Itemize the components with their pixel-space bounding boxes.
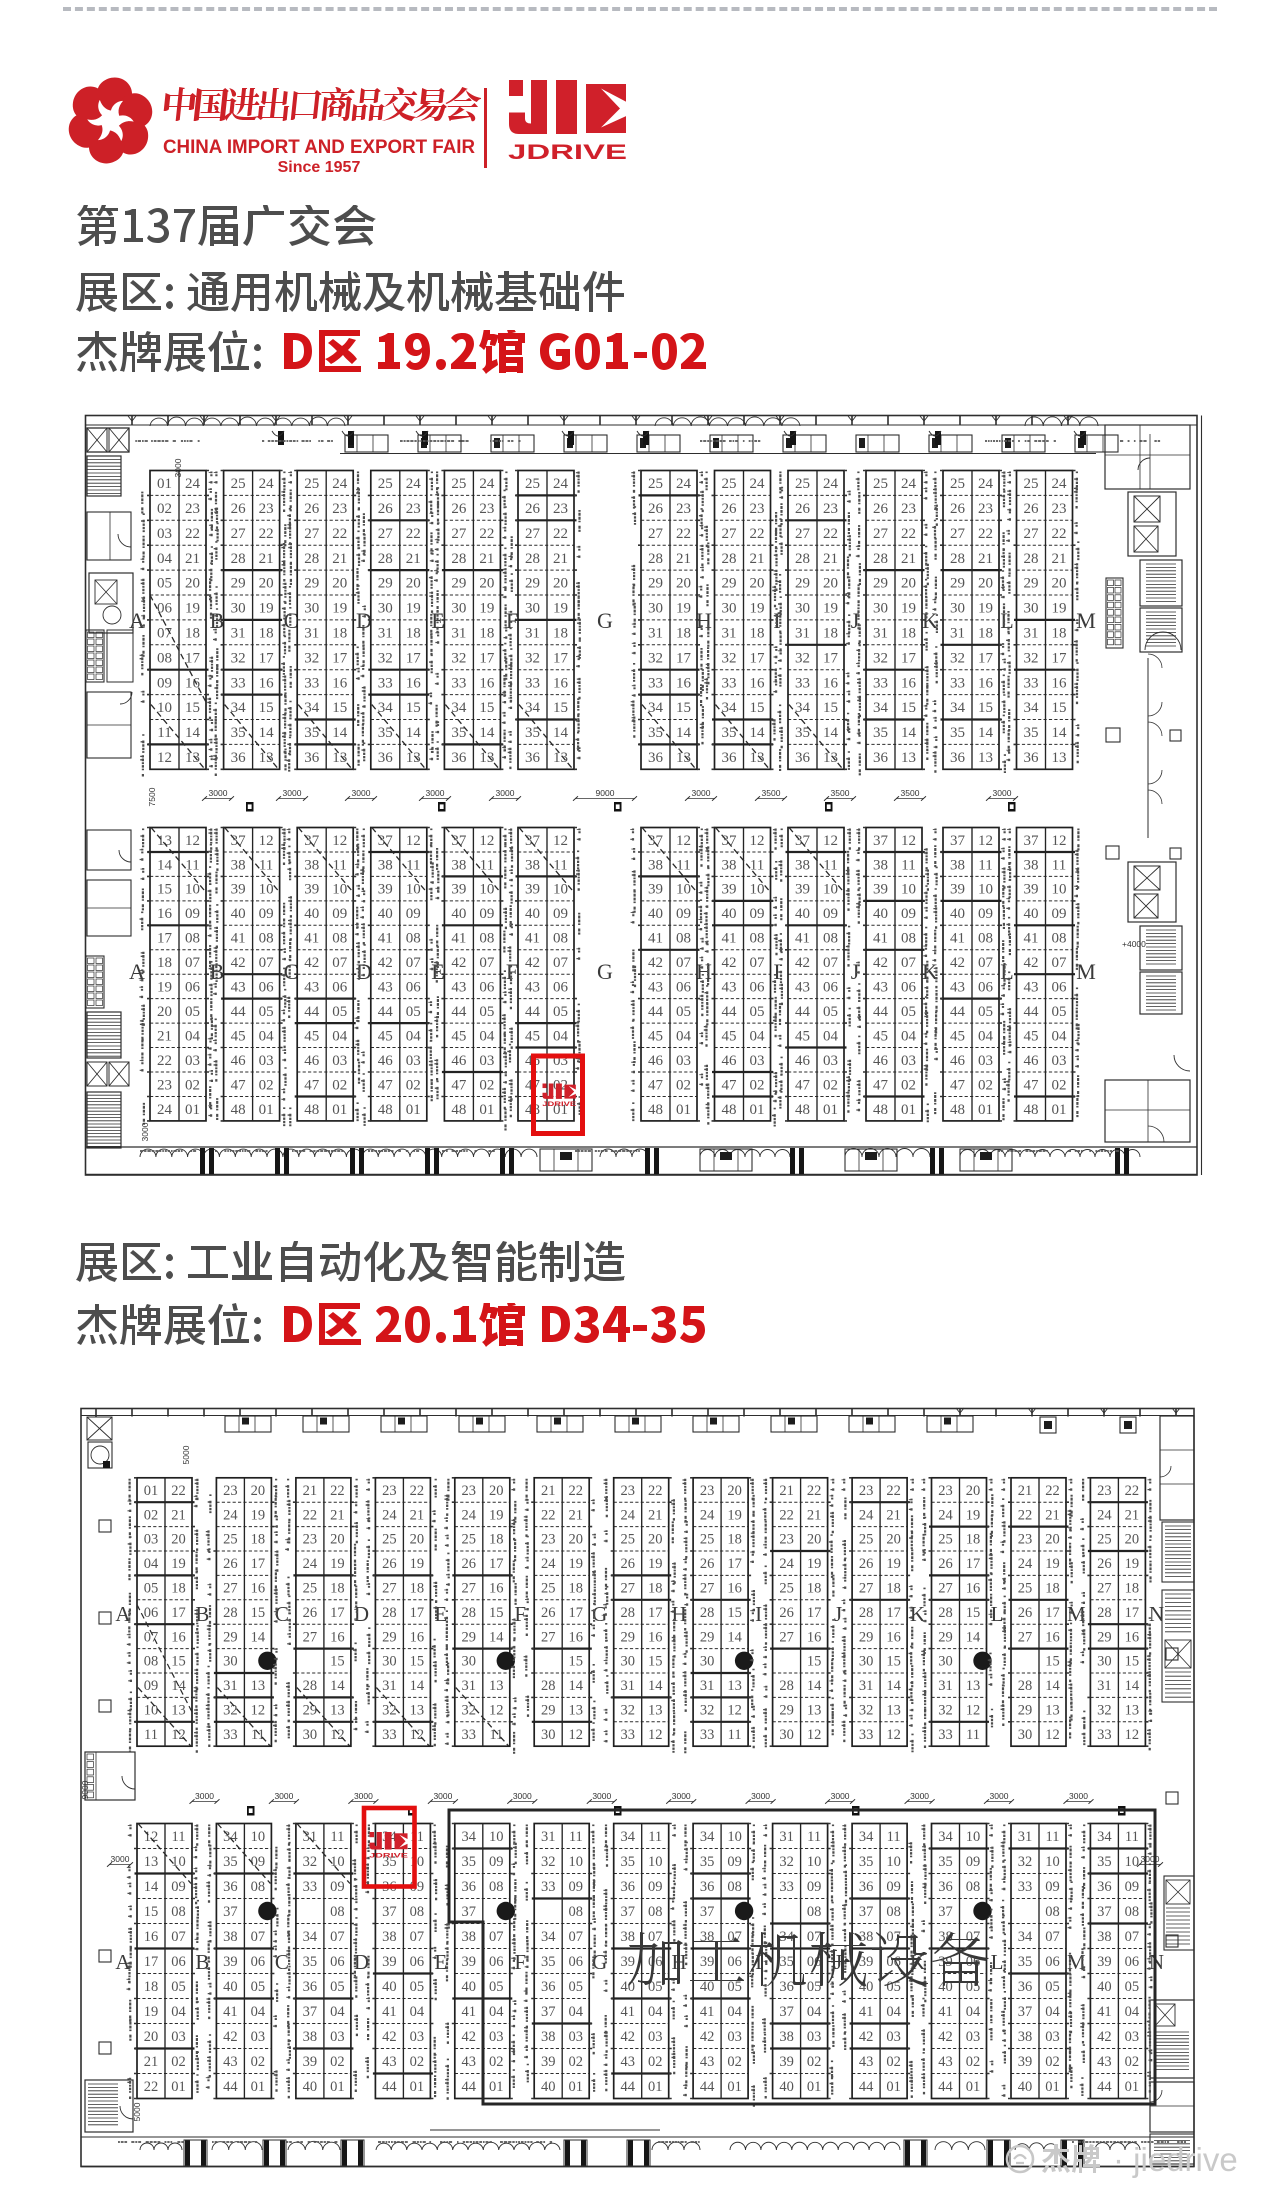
svg-text:34: 34 [620,1829,635,1845]
svg-text:29: 29 [648,576,663,592]
svg-text:28: 28 [950,551,965,567]
svg-text:21: 21 [410,1507,425,1523]
svg-text:30: 30 [378,601,393,617]
svg-text:13: 13 [886,1703,901,1719]
svg-text:19: 19 [966,1507,981,1523]
svg-text:09: 09 [157,675,172,691]
svg-text:27: 27 [378,526,394,542]
svg-text:20: 20 [1045,1532,1060,1548]
svg-text:40: 40 [304,906,319,922]
svg-text:42: 42 [378,955,393,971]
svg-text:18: 18 [750,626,765,642]
svg-text:09: 09 [489,1854,504,1870]
svg-text:20: 20 [901,576,916,592]
svg-text:42: 42 [873,955,888,971]
svg-text:32: 32 [1024,650,1039,666]
svg-text:14: 14 [251,1629,266,1645]
svg-text:26: 26 [795,501,811,517]
svg-text:04: 04 [1052,1028,1068,1044]
svg-text:27: 27 [231,526,247,542]
svg-text:25: 25 [304,476,319,492]
svg-text:19: 19 [569,1556,584,1572]
svg-text:44: 44 [1024,1004,1040,1020]
svg-text:10: 10 [553,882,568,898]
svg-text:3000: 3000 [496,788,515,798]
svg-text:04: 04 [648,2004,663,2020]
svg-text:39: 39 [795,882,810,898]
svg-text:16: 16 [144,1929,159,1945]
svg-text:39: 39 [873,882,888,898]
svg-text:32: 32 [223,1703,238,1719]
svg-text:47: 47 [873,1077,889,1093]
svg-text:12: 12 [259,833,274,849]
svg-text:30: 30 [451,601,466,617]
svg-text:15: 15 [479,700,494,716]
svg-text:32: 32 [938,1703,953,1719]
svg-text:23: 23 [620,1483,635,1499]
svg-text:20: 20 [569,1532,584,1548]
svg-text:19: 19 [251,1507,266,1523]
svg-text:H: H [696,959,712,984]
svg-text:20: 20 [259,576,274,592]
svg-text:25: 25 [303,1581,318,1597]
svg-text:11: 11 [553,857,567,873]
svg-text:28: 28 [231,551,246,567]
svg-text:3000: 3000 [1141,1854,1160,1864]
svg-text:21: 21 [541,1483,556,1499]
svg-text:09: 09 [978,906,993,922]
svg-text:07: 07 [251,1929,266,1945]
svg-text:38: 38 [1024,857,1039,873]
svg-text:32: 32 [873,650,888,666]
svg-text:14: 14 [978,725,994,741]
svg-text:02: 02 [750,1077,765,1093]
svg-text:42: 42 [451,955,466,971]
svg-text:27: 27 [223,1581,238,1597]
svg-text:18: 18 [1125,1581,1140,1597]
svg-text:12: 12 [251,1703,266,1719]
svg-text:25: 25 [541,1581,556,1597]
svg-text:09: 09 [750,906,765,922]
svg-text:17: 17 [886,1605,901,1621]
svg-text:07: 07 [648,1929,663,1945]
svg-text:46: 46 [722,1053,738,1069]
svg-text:26: 26 [859,1556,874,1572]
svg-text:35: 35 [779,1954,794,1970]
svg-text:22: 22 [479,526,494,542]
svg-text:41: 41 [462,2004,477,2020]
svg-text:22: 22 [303,1507,318,1523]
svg-text:07: 07 [978,955,994,971]
svg-text:44: 44 [950,1004,966,1020]
svg-text:03: 03 [648,2029,663,2045]
svg-text:42: 42 [1097,2029,1112,2045]
svg-text:02: 02 [569,2054,584,2070]
svg-text:24: 24 [1052,476,1068,492]
svg-text:18: 18 [332,626,347,642]
svg-text:17: 17 [259,650,275,666]
svg-text:10: 10 [676,882,691,898]
svg-text:27: 27 [779,1629,794,1645]
svg-text:3000: 3000 [111,1854,130,1864]
svg-text:22: 22 [157,1053,172,1069]
svg-text:12: 12 [489,1703,504,1719]
svg-text:12: 12 [648,1727,663,1743]
svg-text:01: 01 [1045,2079,1060,2095]
svg-text:27: 27 [451,526,467,542]
svg-text:12: 12 [171,1727,186,1743]
svg-text:48: 48 [722,1102,737,1118]
svg-text:16: 16 [648,1629,663,1645]
svg-text:04: 04 [185,1028,201,1044]
svg-text:B: B [195,1950,209,1974]
svg-text:02: 02 [1045,2054,1060,2070]
svg-text:13: 13 [978,750,993,766]
svg-text:01: 01 [332,1102,347,1118]
svg-text:G: G [597,608,613,633]
svg-text:48: 48 [795,1102,810,1118]
svg-text:02: 02 [1052,1077,1067,1093]
svg-text:03: 03 [144,1532,159,1548]
svg-text:12: 12 [750,833,765,849]
svg-text:23: 23 [479,501,494,517]
svg-text:24: 24 [620,1507,635,1523]
svg-text:09: 09 [185,906,200,922]
svg-text:23: 23 [1097,1483,1112,1499]
svg-text:38: 38 [451,857,466,873]
svg-text:40: 40 [950,906,965,922]
svg-text:35: 35 [620,1854,635,1870]
svg-text:37: 37 [223,1904,238,1920]
svg-text:26: 26 [382,1556,397,1572]
svg-text:39: 39 [382,1954,397,1970]
svg-text:44: 44 [938,2079,953,2095]
svg-text:7500: 7500 [147,787,157,806]
svg-text:30: 30 [462,1654,477,1670]
svg-text:06: 06 [171,1954,186,1970]
svg-text:07: 07 [410,1929,425,1945]
svg-text:33: 33 [700,1727,715,1743]
svg-text:11: 11 [901,857,915,873]
svg-text:44: 44 [451,1004,467,1020]
svg-text:I: I [755,1602,762,1626]
svg-text:07: 07 [569,1929,584,1945]
svg-text:43: 43 [938,2054,953,2070]
svg-text:M: M [1076,959,1096,984]
svg-text:43: 43 [859,2054,874,2070]
svg-text:32: 32 [779,1854,794,1870]
svg-text:36: 36 [1097,1879,1112,1895]
svg-text:37: 37 [1018,2004,1033,2020]
svg-text:08: 08 [648,1904,663,1920]
svg-text:13: 13 [251,1678,266,1694]
svg-text:25: 25 [873,476,888,492]
svg-text:27: 27 [795,526,811,542]
svg-text:25: 25 [648,476,663,492]
svg-text:48: 48 [950,1102,965,1118]
svg-text:10: 10 [1045,1854,1060,1870]
svg-text:20: 20 [479,576,494,592]
svg-text:45: 45 [451,1028,466,1044]
svg-text:44: 44 [648,1004,664,1020]
svg-text:10: 10 [489,1829,504,1845]
svg-text:43: 43 [873,980,888,996]
svg-text:10: 10 [727,1829,742,1845]
svg-text:CHINA IMPORT AND EXPORT FAIR: CHINA IMPORT AND EXPORT FAIR [163,137,475,158]
svg-text:40: 40 [303,2079,318,2095]
svg-text:26: 26 [378,501,394,517]
svg-text:20: 20 [410,1532,425,1548]
svg-text:06: 06 [251,1954,266,1970]
svg-text:3000: 3000 [672,1791,691,1801]
svg-text:14: 14 [676,725,692,741]
svg-text:26: 26 [223,1556,238,1572]
svg-text:19: 19 [479,601,494,617]
svg-text:28: 28 [648,551,663,567]
svg-text:38: 38 [700,1929,715,1945]
svg-text:31: 31 [378,626,393,642]
svg-text:19: 19 [185,601,200,617]
svg-text:30: 30 [1097,1654,1112,1670]
svg-text:35: 35 [303,1954,318,1970]
svg-text:22: 22 [1052,526,1067,542]
svg-text:22: 22 [886,1483,901,1499]
svg-text:36: 36 [859,1879,874,1895]
svg-text:33: 33 [451,675,466,691]
svg-text:10: 10 [886,1854,901,1870]
svg-text:31: 31 [451,626,466,642]
svg-text:01: 01 [251,2079,266,2095]
svg-text:17: 17 [978,650,994,666]
svg-text:14: 14 [807,1678,822,1694]
svg-text:41: 41 [304,931,319,947]
svg-text:08: 08 [727,1879,742,1895]
svg-text:36: 36 [231,750,247,766]
svg-text:46: 46 [950,1053,966,1069]
svg-text:15: 15 [251,1605,266,1621]
svg-text:07: 07 [330,1929,345,1945]
svg-text:34: 34 [1018,1929,1033,1945]
svg-text:06: 06 [259,980,275,996]
svg-text:41: 41 [1024,931,1039,947]
svg-text:16: 16 [569,1629,584,1645]
svg-text:29: 29 [303,1703,318,1719]
svg-text:24: 24 [779,1556,794,1572]
svg-text:10: 10 [479,882,494,898]
svg-text:04: 04 [978,1028,994,1044]
svg-text:22: 22 [259,526,274,542]
svg-text:05: 05 [807,1979,822,1995]
svg-text:08: 08 [171,1904,186,1920]
svg-text:30: 30 [525,601,540,617]
svg-text:28: 28 [1018,1678,1033,1694]
svg-text:02: 02 [171,2054,186,2070]
svg-text:06: 06 [410,1954,425,1970]
svg-text:09: 09 [259,906,274,922]
svg-text:18: 18 [406,626,421,642]
svg-text:13: 13 [144,1854,159,1870]
svg-text:08: 08 [144,1654,159,1670]
svg-text:18: 18 [727,1532,742,1548]
svg-text:41: 41 [451,931,466,947]
svg-text:32: 32 [382,1703,397,1719]
svg-text:08: 08 [185,931,200,947]
svg-text:04: 04 [259,1028,275,1044]
svg-text:23: 23 [223,1483,238,1499]
svg-text:40: 40 [462,1979,477,1995]
svg-text:08: 08 [569,1904,584,1920]
svg-text:07: 07 [479,955,495,971]
svg-text:03: 03 [157,526,172,542]
svg-text:36: 36 [451,750,467,766]
svg-text:45: 45 [231,1028,246,1044]
svg-text:37: 37 [620,1904,635,1920]
svg-text:13: 13 [676,750,691,766]
svg-text:36: 36 [303,1979,318,1995]
svg-text:43: 43 [462,2054,477,2070]
svg-text:18: 18 [259,626,274,642]
svg-text:23: 23 [901,501,916,517]
svg-text:09: 09 [966,1854,981,1870]
svg-text:30: 30 [382,1654,397,1670]
svg-text:24: 24 [859,1507,874,1523]
svg-text:25: 25 [795,476,810,492]
svg-text:09: 09 [479,906,494,922]
svg-text:3000: 3000 [1069,1791,1088,1801]
svg-text:01: 01 [479,1102,494,1118]
svg-text:38: 38 [950,857,965,873]
svg-text:08: 08 [553,931,568,947]
svg-text:17: 17 [479,650,495,666]
svg-text:27: 27 [859,1581,874,1597]
svg-text:12: 12 [332,833,347,849]
svg-text:13: 13 [1045,1703,1060,1719]
svg-text:42: 42 [382,2029,397,2045]
svg-text:14: 14 [332,725,348,741]
svg-text:13: 13 [807,1703,822,1719]
svg-text:07: 07 [171,1929,186,1945]
svg-text:27: 27 [382,1581,397,1597]
svg-text:04: 04 [1045,2004,1060,2020]
svg-text:3000: 3000 [354,1791,373,1801]
svg-text:23: 23 [406,501,421,517]
svg-text:15: 15 [553,700,568,716]
svg-text:37: 37 [648,833,664,849]
svg-text:24: 24 [1097,1507,1112,1523]
svg-text:10: 10 [144,1703,159,1719]
svg-text:44: 44 [859,2079,874,2095]
svg-text:17: 17 [807,1605,822,1621]
svg-text:01: 01 [185,1102,200,1118]
svg-text:17: 17 [901,650,917,666]
svg-text:07: 07 [553,955,569,971]
svg-text:12: 12 [410,1727,425,1743]
svg-text:3500: 3500 [762,788,781,798]
svg-text:26: 26 [1097,1556,1112,1572]
svg-text:39: 39 [779,2054,794,2070]
svg-text:14: 14 [648,1678,663,1694]
svg-text:42: 42 [304,955,319,971]
svg-text:18: 18 [966,1532,981,1548]
svg-text:23: 23 [382,1483,397,1499]
svg-text:39: 39 [1097,1954,1112,1970]
svg-text:36: 36 [304,750,320,766]
svg-text:22: 22 [406,526,421,542]
svg-text:19: 19 [750,601,765,617]
svg-text:08: 08 [157,650,172,666]
svg-text:17: 17 [823,650,839,666]
svg-text:11: 11 [569,1829,583,1845]
svg-text:15: 15 [144,1904,159,1920]
svg-text:03: 03 [251,2029,266,2045]
svg-text:10: 10 [251,1829,266,1845]
svg-text:31: 31 [223,1678,238,1694]
svg-text:23: 23 [1052,501,1067,517]
svg-text:17: 17 [157,931,173,947]
svg-text:10: 10 [1125,1854,1140,1870]
svg-text:14: 14 [1052,725,1068,741]
svg-text:25: 25 [378,476,393,492]
svg-text:41: 41 [378,931,393,947]
svg-text:27: 27 [1097,1581,1112,1597]
svg-text:34: 34 [873,700,889,716]
svg-text:16: 16 [479,675,495,691]
svg-text:43: 43 [950,980,965,996]
svg-text:29: 29 [1024,576,1039,592]
svg-text:16: 16 [553,675,569,691]
svg-text:40: 40 [223,1979,238,1995]
svg-text:F: F [514,1950,526,1974]
svg-text:3500: 3500 [831,788,850,798]
svg-text:44: 44 [873,1004,889,1020]
svg-text:13: 13 [330,1703,345,1719]
svg-text:42: 42 [722,955,737,971]
svg-text:20: 20 [886,1532,901,1548]
svg-text:24: 24 [676,476,692,492]
svg-text:02: 02 [157,501,172,517]
svg-text:26: 26 [525,501,541,517]
svg-text:20: 20 [1052,576,1067,592]
svg-text:16: 16 [259,675,275,691]
svg-text:30: 30 [700,1654,715,1670]
svg-text:18: 18 [157,955,172,971]
svg-text:16: 16 [807,1629,822,1645]
svg-text:42: 42 [1024,955,1039,971]
svg-text:28: 28 [378,551,393,567]
svg-text:17: 17 [330,1605,345,1621]
svg-text:37: 37 [950,833,966,849]
svg-text:03: 03 [330,2029,345,2045]
svg-text:28: 28 [304,551,319,567]
svg-text:16: 16 [886,1629,901,1645]
svg-text:01: 01 [807,2079,822,2095]
svg-text:39: 39 [304,882,319,898]
svg-text:03: 03 [676,1053,691,1069]
svg-text:JDRIVE: JDRIVE [369,1853,408,1860]
svg-text:3500: 3500 [901,788,920,798]
svg-text:31: 31 [382,1678,397,1694]
svg-text:23: 23 [938,1483,953,1499]
svg-text:42: 42 [231,955,246,971]
svg-text:10: 10 [901,882,916,898]
svg-text:16: 16 [410,1629,425,1645]
svg-text:11: 11 [259,857,273,873]
svg-text:19: 19 [406,601,421,617]
svg-text:07: 07 [807,1929,822,1945]
svg-text:05: 05 [185,1004,200,1020]
svg-text:32: 32 [722,650,737,666]
svg-text:16: 16 [157,906,173,922]
